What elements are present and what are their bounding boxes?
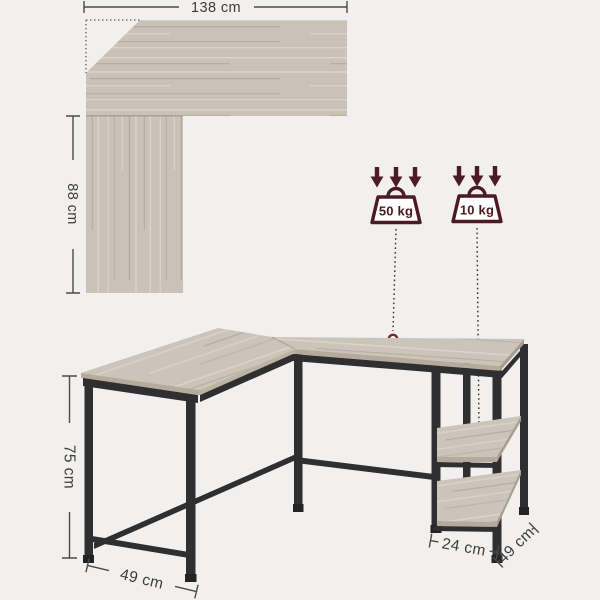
top-view-side-board (86, 116, 183, 293)
leg-foot (519, 507, 529, 515)
dim-width-label: 138 cm (191, 0, 241, 16)
down-arrows-icon (371, 167, 422, 188)
desk-leg (294, 352, 303, 508)
leg-foot (185, 574, 197, 582)
desk-leg (520, 344, 528, 511)
load-capacity-desktop-label: 50 kg (379, 204, 413, 219)
down-arrows-icon (453, 166, 502, 187)
dim-height-label: 75 cm (61, 445, 78, 489)
leg-foot (293, 504, 304, 512)
desk-leg (85, 381, 94, 559)
desk-leg (186, 397, 196, 577)
product-dimension-diagram: 138 cm 88 cm 50 kg 1 (0, 0, 600, 600)
dim-depth-label: 88 cm (64, 183, 80, 225)
load-capacity-shelf-label: 10 kg (460, 203, 494, 218)
diagram-canvas: 138 cm 88 cm 50 kg 1 (0, 0, 600, 600)
